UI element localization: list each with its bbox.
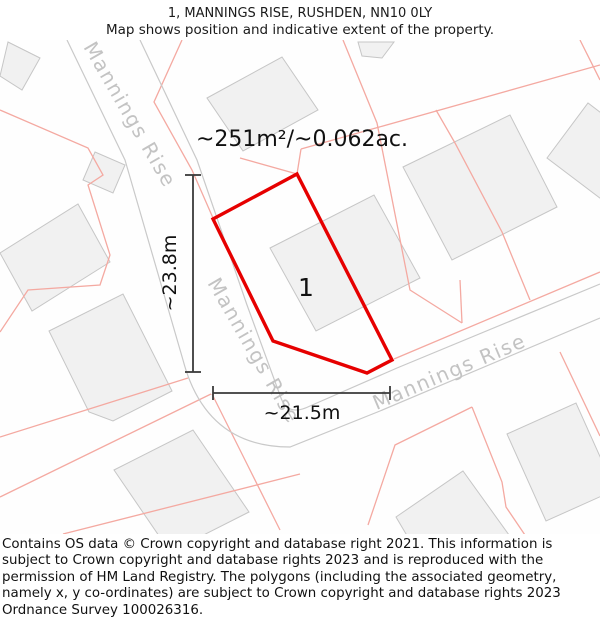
building-footprint bbox=[547, 103, 600, 205]
map-svg: Mannings RiseMannings RiseMannings Rise1… bbox=[0, 40, 600, 534]
parcel-boundary-line bbox=[240, 158, 297, 174]
building-footprint bbox=[114, 430, 249, 534]
map-header: 1, MANNINGS RISE, RUSHDEN, NN10 0LY Map … bbox=[0, 0, 600, 39]
building-footprint bbox=[396, 471, 527, 534]
building-footprint bbox=[0, 204, 110, 311]
plot-number-label: 1 bbox=[298, 273, 314, 302]
width-measure-label: ~21.5m bbox=[264, 402, 341, 424]
parcel-boundary-line bbox=[460, 280, 462, 323]
area-label: ~251m²/~0.062ac. bbox=[196, 127, 408, 152]
map-description-subtitle: Map shows position and indicative extent… bbox=[0, 22, 600, 39]
building-footprint bbox=[507, 403, 600, 521]
property-map: Mannings RiseMannings RiseMannings Rise1… bbox=[0, 40, 600, 534]
building-footprint bbox=[0, 42, 40, 90]
road-name-label: Mannings Rise bbox=[369, 328, 530, 414]
building-footprint bbox=[270, 195, 420, 331]
property-address-title: 1, MANNINGS RISE, RUSHDEN, NN10 0LY bbox=[0, 5, 600, 22]
building-footprint bbox=[403, 115, 557, 260]
parcel-boundary-line bbox=[580, 40, 600, 80]
building-footprint bbox=[83, 152, 125, 193]
parcel-boundary-line bbox=[297, 149, 301, 174]
copyright-notice: Contains OS data © Crown copyright and d… bbox=[2, 537, 592, 619]
building-footprint bbox=[358, 42, 394, 58]
height-measure-label: ~23.8m bbox=[159, 235, 181, 312]
